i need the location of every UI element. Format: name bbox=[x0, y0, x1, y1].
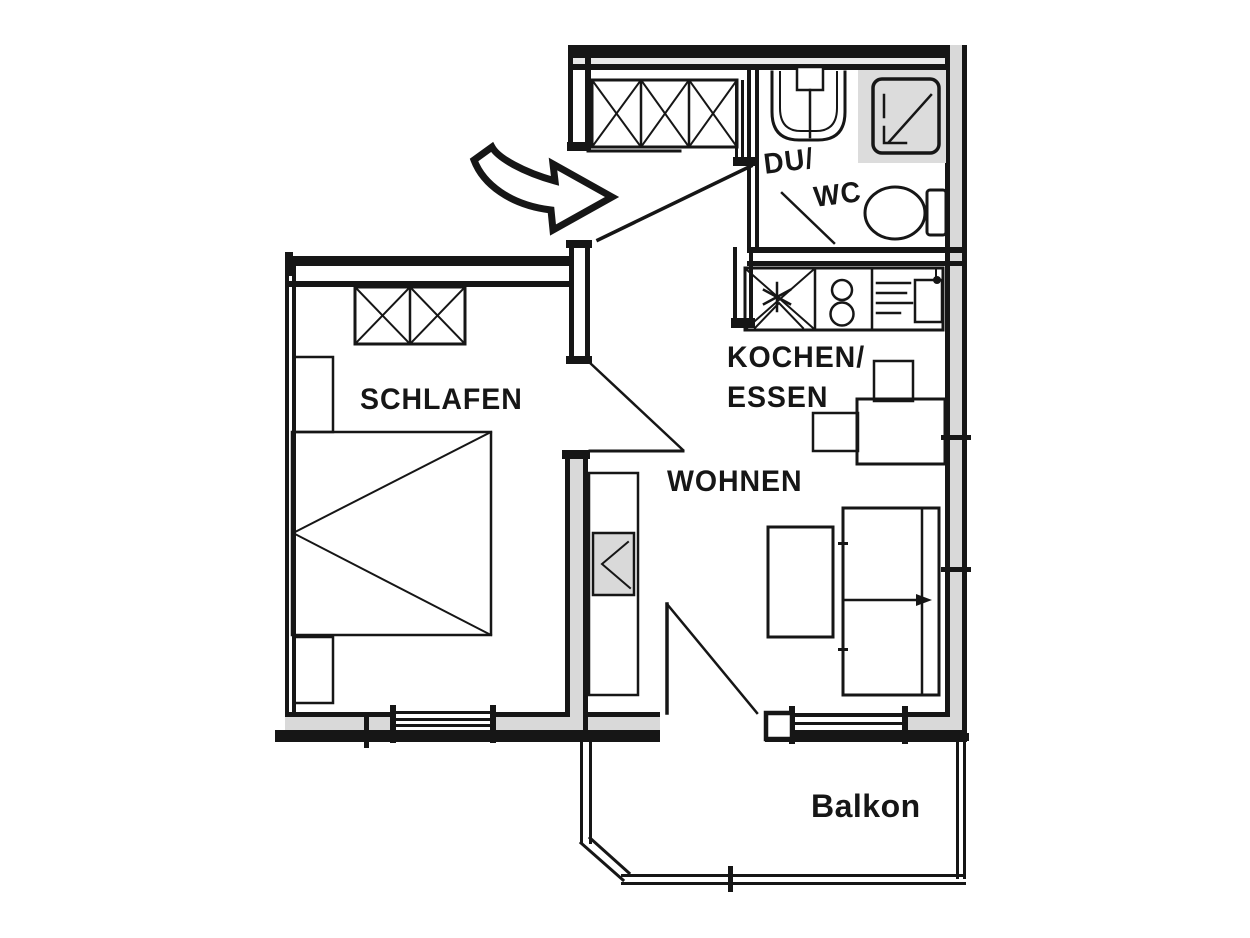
dining-chair bbox=[874, 361, 913, 401]
sofa bbox=[838, 508, 939, 695]
bedroom-wardrobe bbox=[355, 287, 465, 344]
bed bbox=[292, 432, 491, 635]
room-label-balcony: Balkon bbox=[811, 788, 921, 825]
room-label-shower-wc-line1: DU/ bbox=[762, 143, 816, 182]
room-label-kitchen-line2: ESSEN bbox=[727, 381, 828, 415]
room-label-kitchen-line1: KOCHEN/ bbox=[727, 341, 865, 375]
fridge-unit-icon bbox=[747, 270, 813, 328]
floor-plan-drawing bbox=[0, 0, 1250, 938]
dining-table bbox=[857, 399, 945, 464]
bedroom-furniture bbox=[292, 287, 491, 703]
washbasin-icon bbox=[772, 67, 845, 140]
dining-chair bbox=[813, 413, 858, 451]
floor-plan: SCHLAFEN WOHNEN KOCHEN/ ESSEN DU/ WC Bal… bbox=[0, 0, 1250, 938]
room-label-living-room: WOHNEN bbox=[667, 465, 803, 499]
toilet-icon bbox=[865, 187, 946, 239]
room-label-bedroom: SCHLAFEN bbox=[360, 383, 523, 417]
nightstand bbox=[294, 357, 333, 432]
tv-cabinet bbox=[589, 473, 638, 695]
room-label-shower-wc-line2: WC bbox=[812, 176, 863, 215]
entrance-arrow-icon bbox=[474, 147, 612, 230]
stove-icon bbox=[831, 280, 854, 326]
hall-wardrobe bbox=[588, 80, 757, 166]
kitchen-sink-icon bbox=[877, 268, 942, 322]
shower-niche bbox=[858, 70, 946, 163]
coffee-table bbox=[768, 527, 833, 637]
living-room-furniture bbox=[589, 473, 939, 695]
kitchen-counter bbox=[745, 268, 943, 330]
dining-set bbox=[813, 361, 945, 464]
nightstand bbox=[294, 637, 333, 703]
